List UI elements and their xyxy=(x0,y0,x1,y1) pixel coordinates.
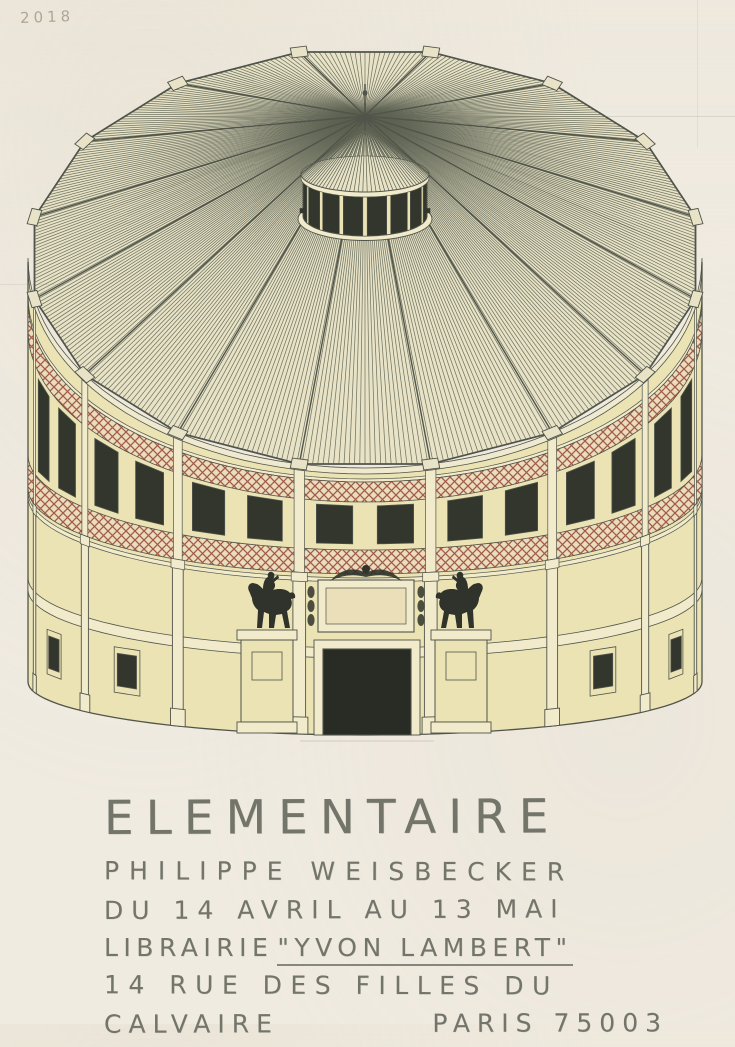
paper-crease xyxy=(0,284,64,285)
attic-window xyxy=(192,482,224,535)
ground-window xyxy=(671,636,681,672)
relief-drop-ornament xyxy=(417,600,424,612)
relief-drop-ornament xyxy=(417,614,424,626)
relief-drop-ornament xyxy=(307,600,314,612)
entrance-bay xyxy=(237,565,491,741)
address-city-word: CALVAIRE xyxy=(104,1009,279,1039)
relief-drop-ornament xyxy=(307,614,314,626)
poster-title: ELEMENTAIRE xyxy=(104,791,668,845)
relief-drop-ornament xyxy=(307,586,314,598)
paper-crease xyxy=(697,0,698,148)
attic-window xyxy=(316,504,352,544)
attic-window xyxy=(59,408,76,497)
attic-window xyxy=(505,482,537,535)
roof-ridge-block xyxy=(422,458,440,470)
attic-window xyxy=(377,504,413,544)
ground-window xyxy=(49,636,59,672)
attic-window xyxy=(136,461,164,525)
attic-window xyxy=(681,379,692,481)
finial-ball xyxy=(362,90,367,95)
address-line-1: 14 RUE DES FILLES DU xyxy=(104,970,668,1001)
ground-window xyxy=(117,653,136,689)
entrance-doorway xyxy=(323,649,411,735)
roof-ridge-block xyxy=(290,458,308,470)
attic-window xyxy=(248,496,283,542)
venue-prefix: LIBRAIRIE xyxy=(104,933,273,962)
exhibition-dates: DU 14 AVRIL AU 13 MAI xyxy=(104,894,668,926)
venue-name: "YVON LAMBERT" xyxy=(277,933,572,966)
roof-ridge-block xyxy=(422,46,440,58)
attic-window xyxy=(566,461,594,525)
caption-block: ELEMENTAIRE PHILIPPE WEISBECKER DU 14 AV… xyxy=(104,792,668,1047)
ground-window xyxy=(594,653,613,689)
attic-window xyxy=(448,496,483,542)
roof-ridge-block xyxy=(290,46,308,58)
venue-line: LIBRAIRIE"YVON LAMBERT" xyxy=(104,933,668,963)
attic-window xyxy=(655,408,672,497)
address-postal: PARIS 75003 xyxy=(432,1008,668,1039)
artist-name: PHILIPPE WEISBECKER xyxy=(104,856,668,887)
relief-drop-ornament xyxy=(417,586,424,598)
paper-crease xyxy=(430,116,735,117)
attic-window xyxy=(38,379,49,481)
